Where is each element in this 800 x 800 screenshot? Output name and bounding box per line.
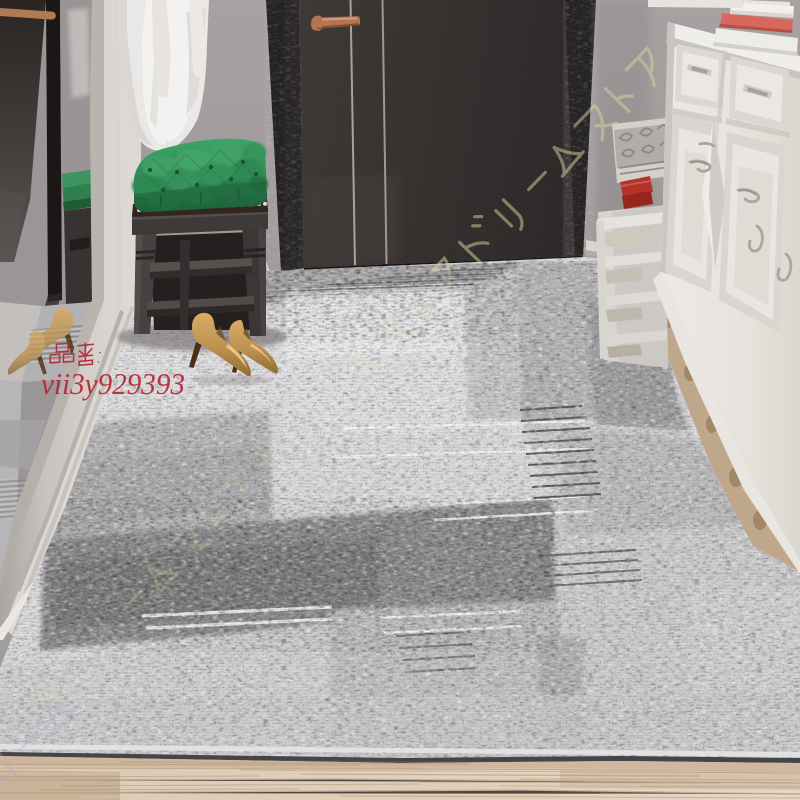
svg-text:vii3y929393: vii3y929393 [41,366,185,401]
